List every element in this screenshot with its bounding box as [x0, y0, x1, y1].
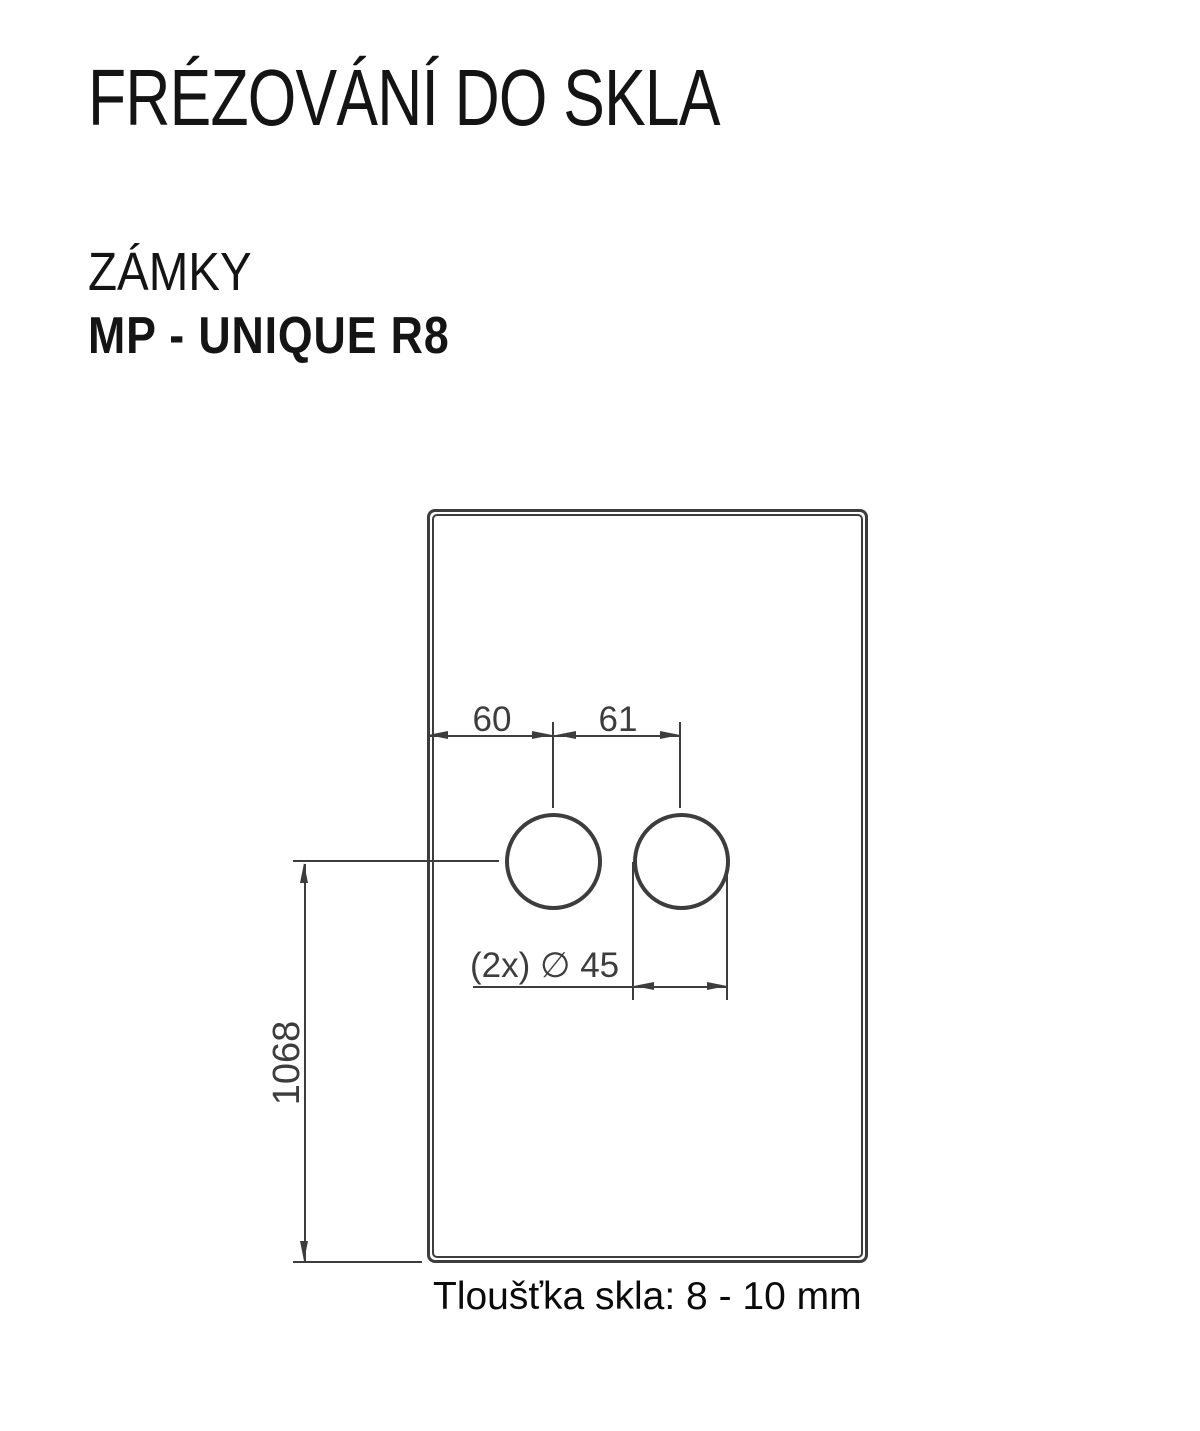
dim-label-hole-diameter: (2x) ∅ 45	[470, 948, 619, 983]
product-name: MP - UNIQUE R8	[88, 310, 450, 362]
category-label: ZÁMKY	[88, 245, 252, 299]
glass-thickness-note: Tloušťka skla: 8 - 10 mm	[433, 1276, 862, 1319]
dim-arrow-height-bottom-icon	[300, 1241, 308, 1261]
hole-circle-left	[505, 813, 602, 910]
page: FRÉZOVÁNÍ DO SKLA ZÁMKY MP - UNIQUE R8 6…	[0, 0, 1200, 1431]
extension-line-hole-center	[293, 860, 499, 862]
dim-arrow-45-right-icon	[707, 982, 727, 990]
witness-line-hole2-left	[632, 862, 634, 1000]
witness-line-hole1-center	[552, 722, 554, 808]
dim-label-61: 61	[566, 702, 670, 737]
dim-label-height: 1068	[268, 1003, 306, 1123]
witness-line-hole2-right	[726, 862, 728, 1000]
hole-circle-right	[633, 813, 730, 910]
dim-arrow-height-top-icon	[300, 863, 308, 883]
dim-leader-line-45	[473, 986, 728, 988]
extension-line-glass-bottom	[293, 1261, 422, 1263]
dim-arrow-45-left-icon	[634, 982, 654, 990]
dim-label-60: 60	[440, 702, 544, 737]
page-title: FRÉZOVÁNÍ DO SKLA	[88, 58, 720, 138]
